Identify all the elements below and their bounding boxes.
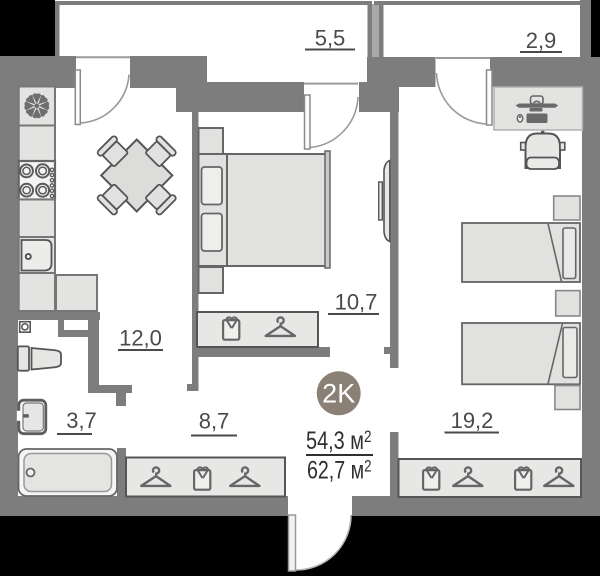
svg-text:62,7 м2: 62,7 м2 [307, 457, 372, 485]
svg-text:2,9: 2,9 [526, 28, 557, 53]
svg-text:10,7: 10,7 [335, 290, 378, 315]
svg-text:19,2: 19,2 [451, 408, 494, 433]
svg-text:54,3 м2: 54,3 м2 [306, 427, 372, 455]
svg-text:12,0: 12,0 [119, 326, 162, 351]
svg-text:3,7: 3,7 [66, 408, 97, 433]
svg-text:5,5: 5,5 [315, 26, 346, 51]
svg-text:8,7: 8,7 [199, 409, 230, 434]
svg-text:2K: 2K [322, 379, 355, 409]
